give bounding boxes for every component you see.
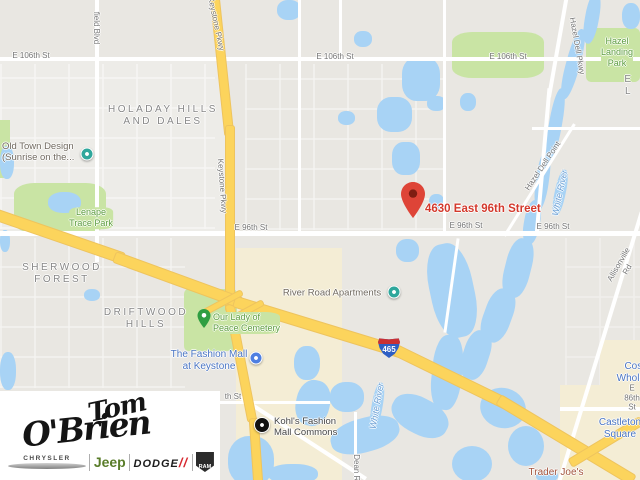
fashion-mall-pin[interactable]	[250, 352, 263, 365]
divider	[192, 454, 193, 471]
divider	[89, 454, 90, 471]
dodge-logo: DODGE//	[134, 455, 189, 470]
brand-logos-row: CHRYSLER Jeep DODGE// RAM	[8, 448, 214, 476]
map-screenshot: 465 E 106th StE 106th StE 106th Stfield …	[0, 0, 640, 480]
dodge-slashes-icon: //	[179, 455, 188, 470]
jeep-logo: Jeep	[94, 454, 126, 470]
kohls-pin[interactable]	[254, 417, 270, 433]
chrysler-logo: CHRYSLER	[8, 455, 86, 469]
ram-badge-icon: RAM	[196, 452, 214, 472]
address-marker-label[interactable]: 4630 East 96th Street	[425, 203, 541, 215]
old-town-design-pin[interactable]	[81, 148, 94, 161]
divider	[129, 454, 130, 471]
chrysler-wing-icon	[8, 463, 86, 469]
dealer-name-script-obrien: O'Brien	[20, 402, 151, 454]
location-marker-pin[interactable]	[401, 182, 425, 223]
river-road-apartments-pin[interactable]	[388, 286, 401, 299]
marker-icon	[401, 182, 425, 218]
cemetery-pin[interactable]	[198, 309, 211, 333]
dealer-logo-panel[interactable]: Tom O'Brien CHRYSLER Jeep DODGE// RAM	[0, 391, 220, 480]
